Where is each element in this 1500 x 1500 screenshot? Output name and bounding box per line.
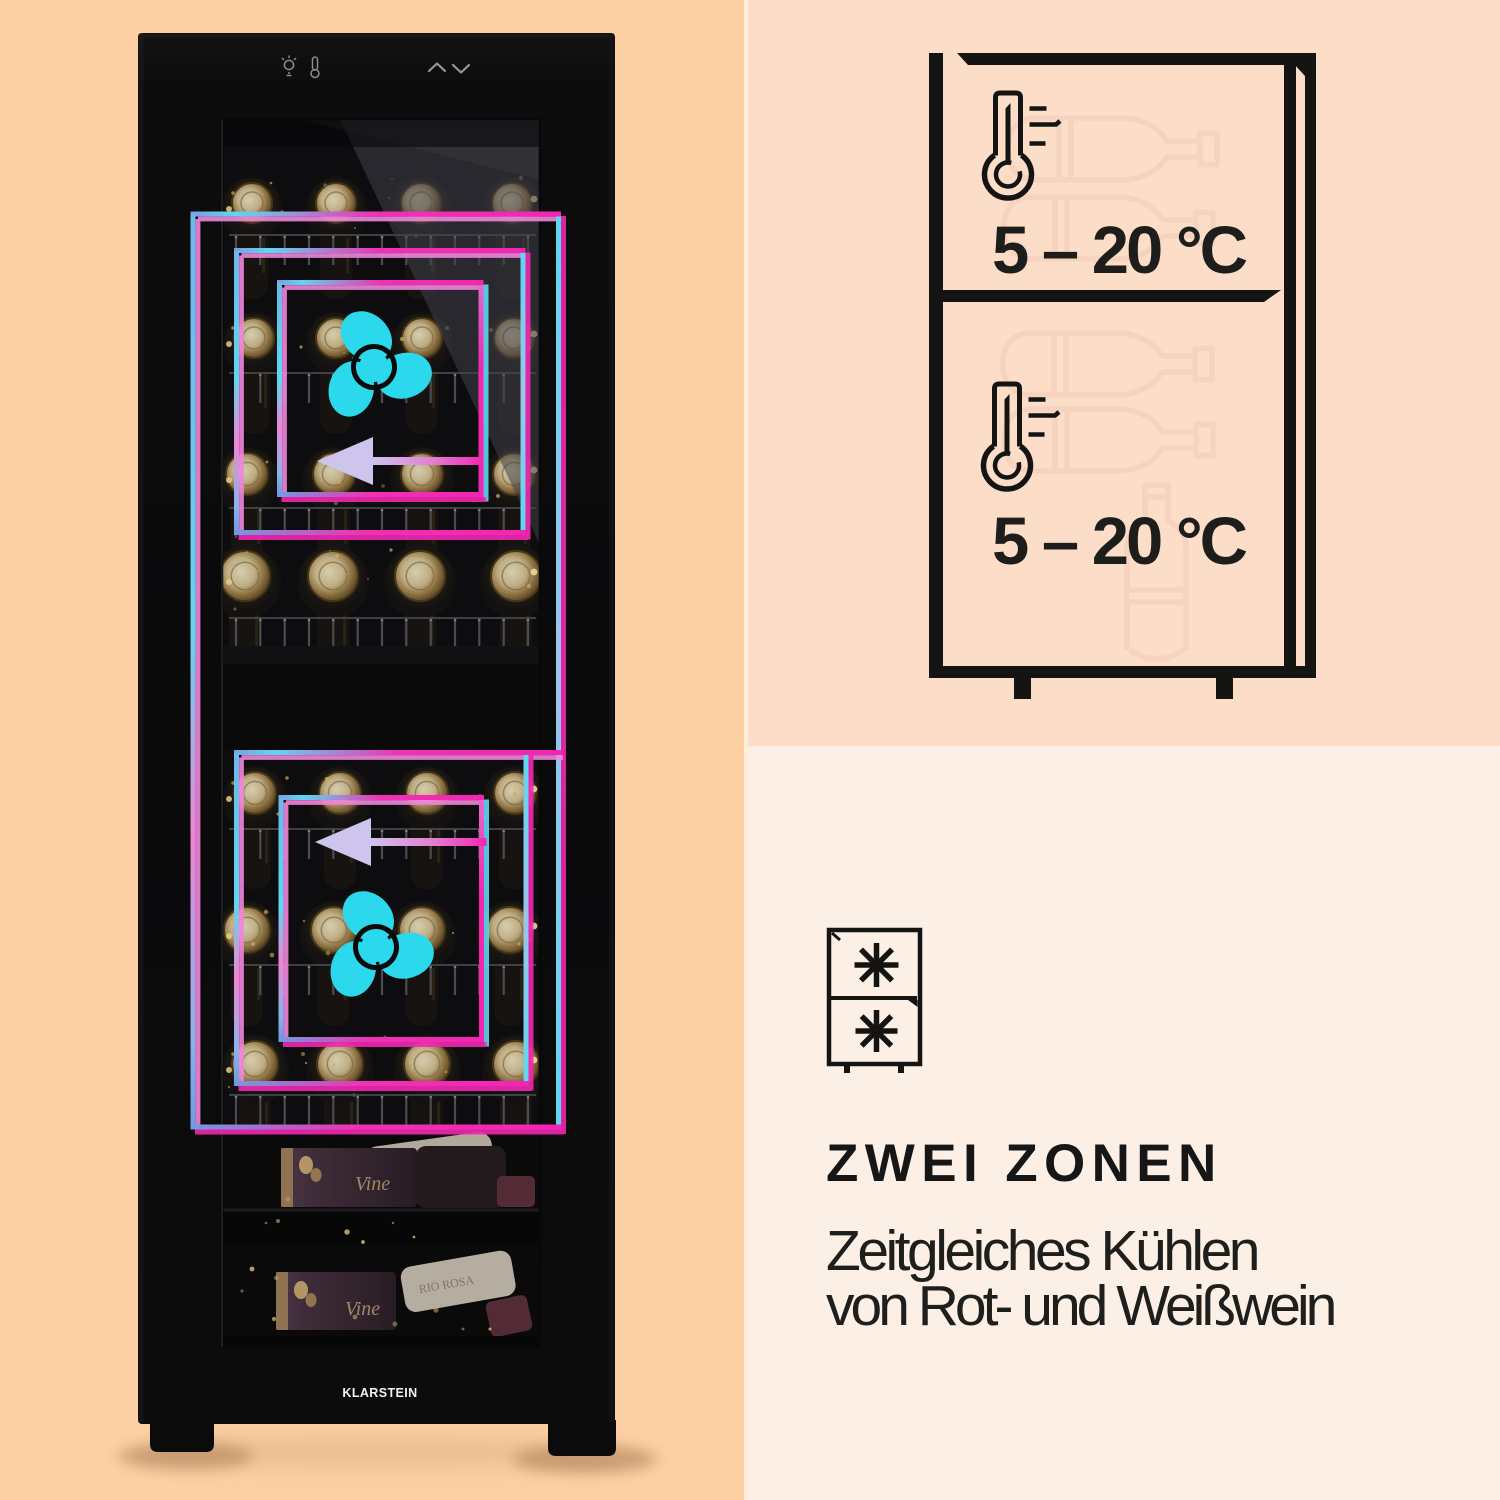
svg-text:5 – 20 °C: 5 – 20 °C — [992, 213, 1247, 288]
svg-text:ZWEI ZONEN: ZWEI ZONEN — [826, 1134, 1223, 1193]
svg-text:KLARSTEIN: KLARSTEIN — [342, 1386, 417, 1400]
svg-text:von Rot- und Weißwein: von Rot- und Weißwein — [826, 1274, 1334, 1338]
svg-text:Vine: Vine — [345, 1298, 380, 1320]
svg-text:5 – 20 °C: 5 – 20 °C — [992, 504, 1247, 579]
svg-text:Vine: Vine — [355, 1173, 390, 1195]
